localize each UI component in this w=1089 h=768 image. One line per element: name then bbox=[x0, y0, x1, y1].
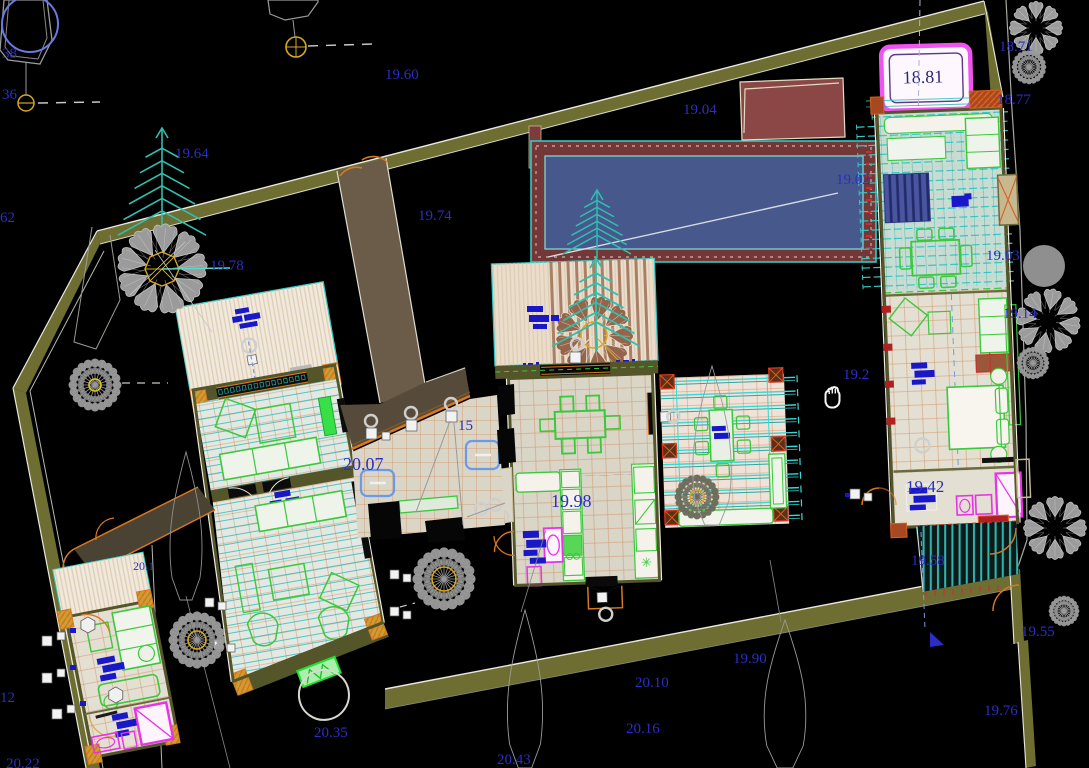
svg-text:15: 15 bbox=[458, 418, 473, 434]
svg-text:19.03: 19.03 bbox=[986, 248, 1020, 264]
svg-text:20.22: 20.22 bbox=[6, 756, 40, 768]
svg-text:62: 62 bbox=[0, 210, 15, 226]
svg-text:18.71: 18.71 bbox=[999, 39, 1033, 55]
svg-text:19.02: 19.02 bbox=[836, 172, 870, 188]
svg-text:20.1: 20.1 bbox=[133, 559, 154, 573]
svg-text:20.43: 20.43 bbox=[497, 752, 531, 768]
svg-text:12: 12 bbox=[0, 690, 15, 706]
svg-text:38: 38 bbox=[2, 46, 17, 62]
svg-text:19.55: 19.55 bbox=[1021, 624, 1055, 640]
svg-text:19.76: 19.76 bbox=[984, 703, 1018, 719]
svg-text:20.35: 20.35 bbox=[314, 725, 348, 741]
svg-text:19.90: 19.90 bbox=[733, 651, 767, 667]
svg-text:19.60: 19.60 bbox=[385, 67, 419, 83]
svg-text:19.14: 19.14 bbox=[1003, 306, 1037, 322]
svg-text:18.77: 18.77 bbox=[997, 92, 1031, 108]
svg-text:19.78: 19.78 bbox=[210, 258, 244, 274]
svg-text:19.64: 19.64 bbox=[175, 146, 209, 162]
svg-text:19.74: 19.74 bbox=[418, 208, 452, 224]
svg-text:19.98: 19.98 bbox=[551, 491, 592, 511]
svg-text:20.07: 20.07 bbox=[343, 454, 384, 474]
svg-text:19.2: 19.2 bbox=[843, 367, 869, 383]
svg-text:19.42: 19.42 bbox=[906, 477, 944, 496]
svg-text:36: 36 bbox=[2, 87, 18, 103]
svg-text:✳: ✳ bbox=[641, 555, 653, 570]
svg-text:18.81: 18.81 bbox=[902, 66, 943, 87]
svg-text:20.10: 20.10 bbox=[635, 675, 669, 691]
svg-text:19.04: 19.04 bbox=[683, 102, 717, 118]
svg-text:20.16: 20.16 bbox=[626, 721, 660, 737]
svg-text:19.58: 19.58 bbox=[911, 553, 945, 569]
